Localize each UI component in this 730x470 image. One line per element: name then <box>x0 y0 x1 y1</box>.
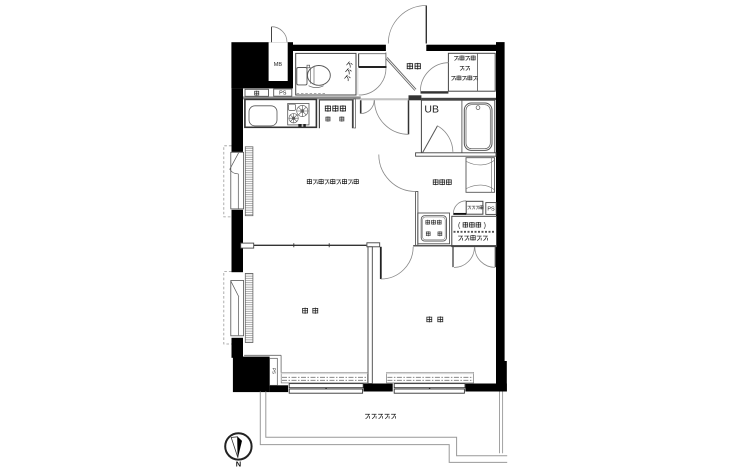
svg-text:): ) <box>484 223 486 230</box>
svg-text:MB: MB <box>274 62 283 68</box>
svg-text:N: N <box>236 460 241 469</box>
svg-text:PS: PS <box>279 91 287 97</box>
svg-text:PS: PS <box>487 207 495 213</box>
svg-text:PS: PS <box>272 368 277 374</box>
svg-text:UB: UB <box>424 104 439 116</box>
